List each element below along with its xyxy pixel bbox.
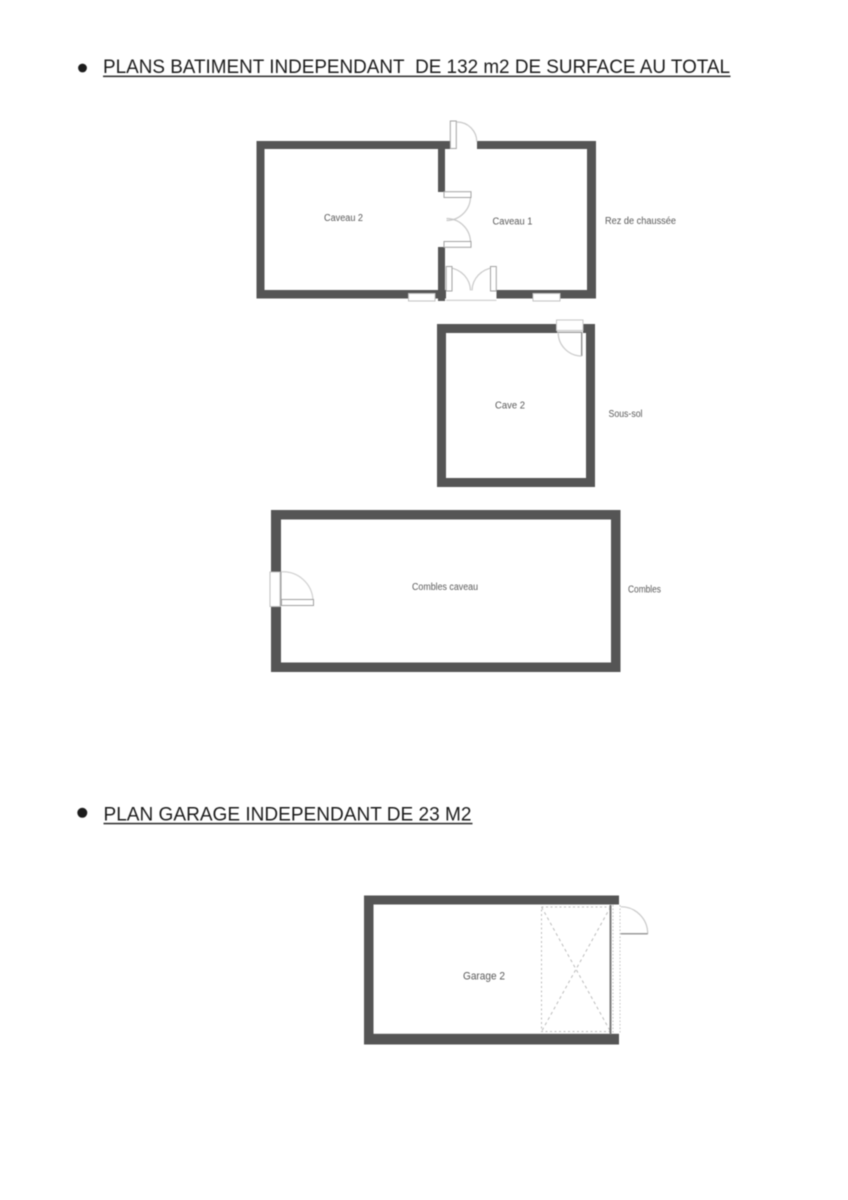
svg-text:Cave 2: Cave 2 xyxy=(495,401,525,412)
svg-text:Rez de chaussée: Rez de chaussée xyxy=(605,216,676,227)
svg-text:PLAN GARAGE INDEPENDANT DE 23: PLAN GARAGE INDEPENDANT DE 23 M2 xyxy=(104,804,472,826)
svg-text:PLANS BATIMENT INDEPENDANT DE: PLANS BATIMENT INDEPENDANT DE 132 m2 DE … xyxy=(103,56,730,78)
svg-text:Sous-sol: Sous-sol xyxy=(609,409,643,420)
svg-text:Garage 2: Garage 2 xyxy=(463,971,505,983)
svg-text:Combles: Combles xyxy=(628,585,661,596)
svg-text:Combles caveau: Combles caveau xyxy=(412,582,478,593)
svg-text:Caveau 1: Caveau 1 xyxy=(493,217,533,228)
svg-text:Caveau 2: Caveau 2 xyxy=(324,213,363,224)
